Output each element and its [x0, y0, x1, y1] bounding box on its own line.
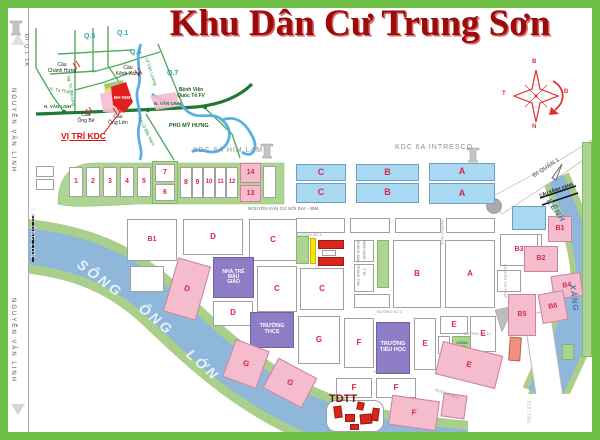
landmark-icons: [0, 0, 600, 440]
blank-patch: [468, 394, 592, 432]
map-page: 1234576891011121413CCBBAAB1DCDNHÀ TRẺMẪU…: [0, 0, 600, 440]
tower-icon: [467, 148, 479, 162]
tower-icon: [10, 21, 22, 35]
tower-icon: [261, 144, 273, 158]
page-title: Khu Dân Cư Trung Sơn: [140, 2, 580, 45]
